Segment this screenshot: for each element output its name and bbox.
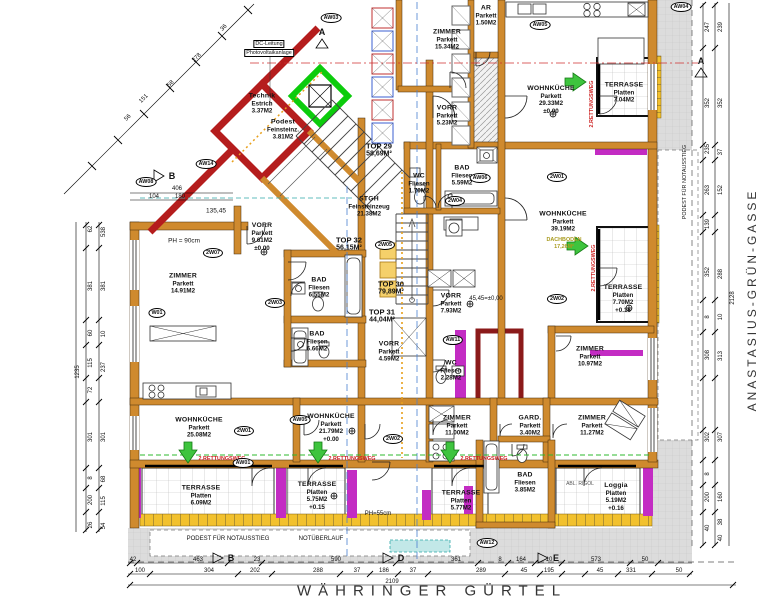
dimension: 239 — [718, 22, 724, 32]
component-tag: 2W01 — [547, 172, 567, 182]
component-tag: AW04 — [671, 2, 692, 12]
component-tag: AW01 — [233, 458, 254, 468]
room-label: WOHNKÜCHEParkett21.79M2+0.00 — [307, 413, 355, 443]
dimension: 50 — [676, 568, 683, 574]
section-marker-b: B — [169, 171, 176, 181]
dimension: 186 — [379, 568, 389, 574]
section-marker-d: D — [398, 553, 405, 563]
room-label: BADFliesen6.66M2 — [306, 331, 327, 354]
dimension: 352 — [705, 98, 711, 108]
room-label: PodestFeinsteinz.3.81M2 — [267, 119, 299, 142]
dimension: 381 — [88, 281, 94, 291]
room-label: STGHFeinsteinzeug21.38M2 — [348, 196, 389, 219]
podest-notausstieg-right-note: PODEST FÜR NOTAUSSTIEG — [682, 145, 688, 219]
room-label: TERRASSEPlatten6.09M2 — [182, 485, 221, 508]
photovoltaik-note: Photovoltaikanlage — [244, 49, 294, 57]
dimension: 463 — [193, 557, 203, 563]
component-tag: AW12 — [477, 538, 498, 548]
rettungsweg-note: 2.RETTUNGSWEG — [589, 80, 595, 127]
room-label: TERRASSEPlatten5.75M2+0.15 — [298, 481, 337, 511]
dimension: 352 — [718, 98, 724, 108]
dimension: 313 — [718, 351, 724, 361]
component-tag: AW14 — [196, 159, 217, 169]
dimension: 62 — [88, 226, 94, 233]
dimension: 72 — [88, 387, 94, 394]
dimension: 573 — [591, 557, 601, 563]
dimension: 361 — [451, 557, 461, 563]
room-label: GARD.Parkett3.40M2 — [519, 415, 542, 438]
dimension: 115 — [88, 358, 94, 368]
dimension: 100 — [135, 568, 145, 574]
dimension: 164 — [516, 557, 526, 563]
dimension: 38 — [718, 519, 724, 526]
rettungsweg-note: 2.RETTUNGSWEG — [460, 456, 507, 462]
component-tag: 2W02 — [383, 434, 403, 444]
section-marker-e: E — [553, 553, 559, 563]
component-tag: AW05 — [290, 415, 311, 425]
dimension: 247 — [705, 22, 711, 32]
dimension: 301 — [101, 432, 107, 442]
room-label: WOHNKÜCHEParkett39.19M2 — [539, 211, 587, 234]
room-label: TechnikEstrich3.37M2 — [249, 93, 276, 116]
dimension: 331 — [626, 568, 636, 574]
component-tag: W01 — [148, 308, 165, 318]
dimension: 180 — [175, 194, 185, 200]
room-label: ZIMMERParkett14.91M2 — [169, 273, 197, 296]
dimension: 160 — [718, 492, 724, 502]
component-tag: AW03 — [321, 13, 342, 23]
rettungsweg-note: 2.RETTUNGSWEG — [328, 456, 375, 462]
component-tag: 2W03 — [265, 298, 285, 308]
component-tag: 2W07 — [203, 248, 223, 258]
dimension: 200 — [705, 492, 711, 502]
dimension: 288 — [313, 568, 323, 574]
dimension: 304 — [204, 568, 214, 574]
dimension: 10 — [101, 331, 107, 338]
parapet-height-note: PH=55cm — [365, 511, 392, 517]
dimension: 45 — [521, 568, 528, 574]
component-tag: AW05 — [530, 20, 551, 30]
dimension: 139 — [705, 219, 711, 229]
dimension: 23 — [254, 557, 261, 563]
room-label: ZIMMERParkett15.34M2 — [433, 29, 461, 52]
component-tag: 2W02 — [547, 294, 567, 304]
room-label: WCFliesen1.70M2 — [408, 173, 429, 196]
dimension: 200 — [88, 495, 94, 505]
room-label: TERRASSEPlatten7.70M2+0.16 — [604, 284, 643, 314]
dimension: 10 — [718, 314, 724, 321]
room-label: ZIMMERParkett11.27M2 — [578, 415, 606, 438]
dimension: 37 — [354, 568, 361, 574]
section-marker-a: A — [698, 56, 705, 66]
component-tag: 2W01 — [234, 426, 254, 436]
dimension: 40 — [718, 535, 724, 542]
dimension-total: 2128 — [730, 291, 736, 304]
dimension: 288 — [718, 269, 724, 279]
dimension: 352 — [705, 267, 711, 277]
dimension: 42 — [130, 557, 137, 563]
dimension: 8 — [88, 476, 94, 479]
rettungsweg-note: 2.RETTUNGSWEG — [591, 244, 597, 291]
dimension: 538 — [101, 227, 107, 237]
dimension: 104 — [149, 194, 159, 200]
dimension: 301 — [88, 432, 94, 442]
dimension: 8 — [498, 557, 501, 563]
room-label: WOHNKÜCHEParkett29.33M2±0.00 — [527, 85, 575, 115]
parapet-height-note: PH = 90cm — [168, 238, 200, 245]
component-tag: AW06 — [470, 173, 491, 183]
dimension: 54 — [101, 523, 107, 530]
dimension: 10 — [546, 557, 553, 563]
room-label: VORRParkett4.59M2 — [379, 341, 400, 364]
room-label: VORRParkett9.61M2±0.00 — [252, 222, 273, 252]
room-label: VORRParkett7.93M2 — [441, 293, 462, 316]
dimension: 45 — [597, 568, 604, 574]
dimension-total: 1235 — [75, 365, 81, 378]
room-label: LoggiaPlatten5.19M2+0.16 — [604, 482, 627, 512]
dimension: 590 — [331, 557, 341, 563]
apartment-label: TOP 3144,04M² — [369, 307, 395, 325]
dimension: 308 — [705, 350, 711, 360]
dc-leitung-note: DC-Leitung — [253, 40, 284, 48]
dimension: 307 — [718, 432, 724, 442]
room-label: ZIMMERParkett10.97M2 — [576, 346, 604, 369]
component-tag: AW08 — [136, 177, 157, 187]
room-label: WCFliesen2.28M2 — [440, 360, 461, 383]
podest-notausstieg-note: PODEST FÜR NOTAUSSTIEG — [187, 536, 270, 542]
room-label: ZIMMERParkett11.00M2 — [443, 415, 471, 438]
dimension: 68 — [101, 476, 107, 483]
component-tag: 2W05 — [375, 240, 395, 250]
dimension: 263 — [705, 185, 711, 195]
dimension: 60 — [88, 330, 94, 337]
room-label: VORRParkett5.23M2 — [437, 105, 458, 128]
dimension: 289 — [476, 568, 486, 574]
dimension: 115 — [101, 496, 107, 506]
street-name-anastasius-gruen-gasse: ANASTASIUS-GRÜN-GASSE — [745, 189, 759, 412]
dimension: 40 — [705, 525, 711, 532]
room-label: ARParkett1.50M2 — [476, 5, 497, 28]
dimension: 406 — [172, 186, 182, 192]
dimension: 37 — [410, 568, 417, 574]
dimension: 8 — [705, 472, 711, 475]
room-label: BADFliesen3.85M2 — [514, 472, 535, 495]
room-label: BADFliesen6.55M2 — [308, 277, 329, 300]
dimension: 237 — [101, 362, 107, 372]
floor-plan-drawing — [0, 0, 780, 600]
dachboden-area-note: 17,26M² — [554, 244, 574, 250]
dimension: 135,45 — [206, 208, 226, 215]
dimension: 26 — [88, 522, 94, 529]
level-note: 45,45=±0,00 — [469, 296, 503, 302]
room-label: WOHNKÜCHEParkett25.08M2 — [175, 417, 223, 440]
apartment-label: TOP 2958,69M² — [366, 141, 392, 159]
dimension: 8 — [705, 315, 711, 318]
component-tag: 2W04 — [445, 196, 465, 206]
dimension: 37 — [718, 149, 724, 156]
notueberlauf-note: NOTÜBERLAUF — [299, 536, 344, 542]
dimension: 195 — [544, 568, 554, 574]
dimension: 381 — [101, 281, 107, 291]
floor-plan-page: ZIMMERParkett15.34M2 ARParkett1.50M2 VOR… — [0, 0, 780, 600]
room-label: TERRASSEPlatten5.77M2 — [442, 490, 481, 513]
dimension: 302 — [705, 432, 711, 442]
dimension: 235 — [705, 144, 711, 154]
street-name-waehringer-guertel: WÄHRINGER GÜRTEL — [297, 583, 567, 600]
dimension: 152 — [718, 185, 724, 195]
dimension: 50 — [642, 557, 649, 563]
room-label: TERRASSEPlatten7.04M2 — [605, 82, 644, 105]
apartment-label: TOP 3256,15M² — [336, 235, 362, 253]
section-marker-a: A — [319, 27, 326, 37]
dimension: 202 — [250, 568, 260, 574]
apartment-label: TOP 3079,89M² — [378, 279, 404, 297]
abl-rigol-note: ABL. RIGOL — [566, 481, 594, 487]
dachboden-note: DACHBODEN — [546, 237, 581, 243]
section-marker-b: B — [228, 553, 235, 563]
